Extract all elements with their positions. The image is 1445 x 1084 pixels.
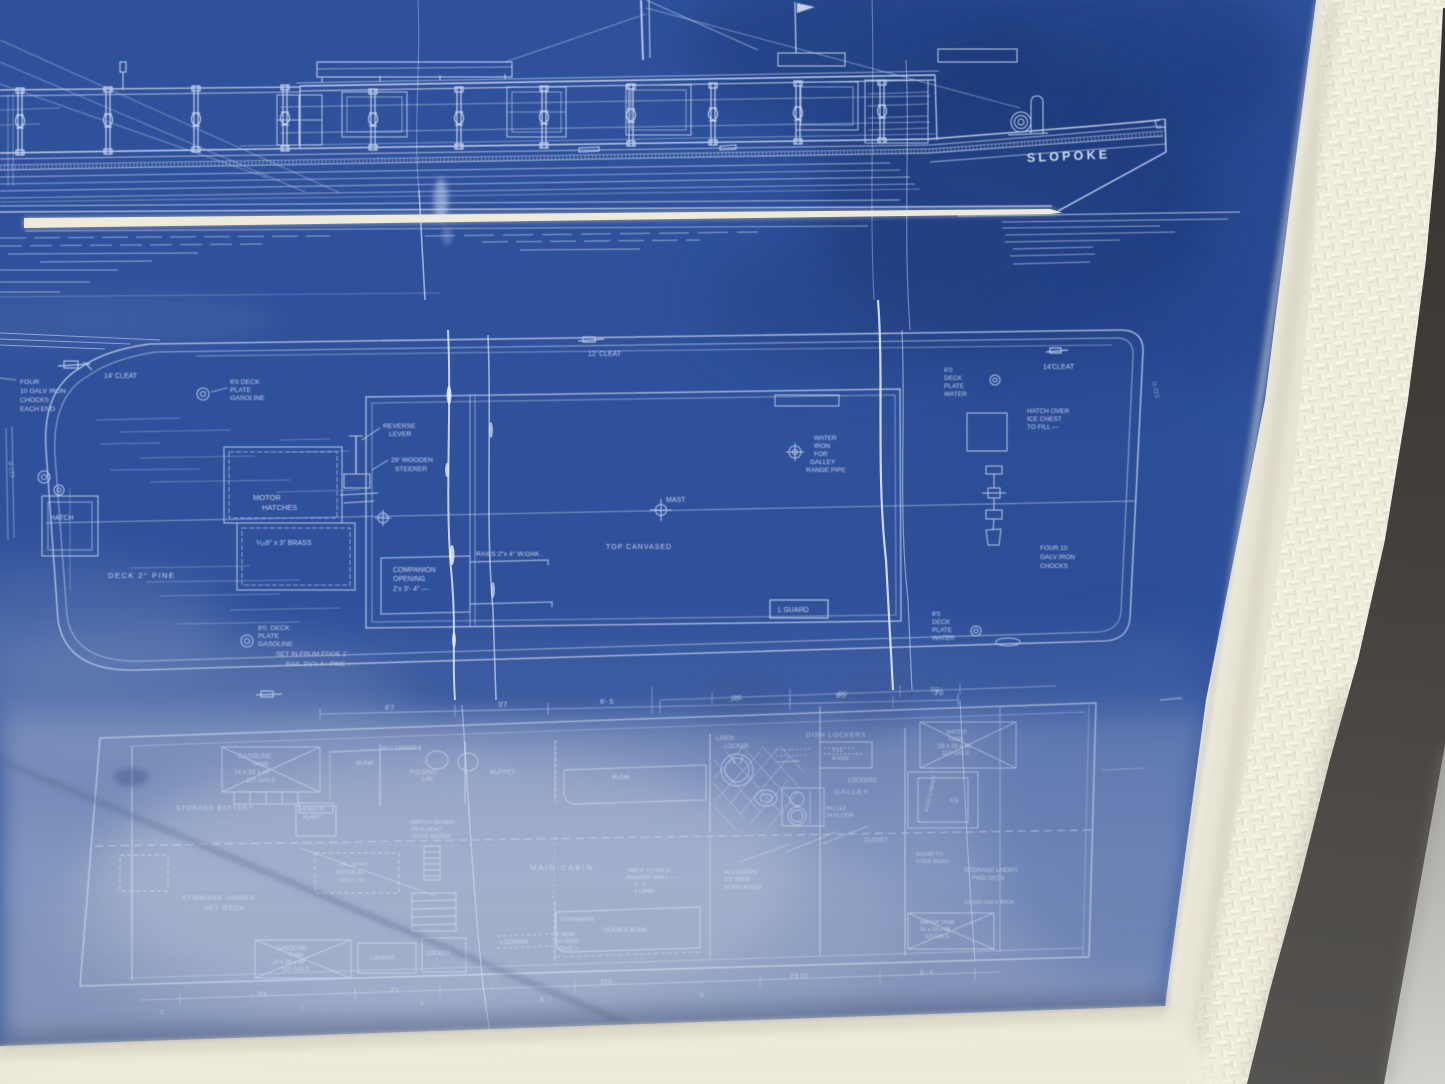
svg-text:ETER BERG: ETER BERG <box>916 859 950 865</box>
svg-text:LOCKER: LOCKER <box>426 951 451 957</box>
svg-text:24 x 26 x 48: 24 x 26 x 48 <box>234 769 270 776</box>
svg-text:GASOLINE: GASOLINE <box>276 946 307 952</box>
svg-text:14′ CLEAT: 14′ CLEAT <box>104 373 138 380</box>
svg-text:10 - 20 H P: 10 - 20 H P <box>340 862 368 868</box>
svg-text:2′x 3′- 4″ —: 2′x 3′- 4″ — <box>393 586 428 593</box>
svg-text:24 FLOOR: 24 FLOOR <box>826 813 854 819</box>
svg-text:BUFFET: BUFFET <box>490 769 515 776</box>
svg-text:MOTOR AT: MOTOR AT <box>336 870 365 876</box>
svg-text:TO FILL —: TO FILL — <box>1027 424 1059 431</box>
svg-text:WATER: WATER <box>814 435 837 442</box>
svg-text:FOLDING: FOLDING <box>410 770 437 776</box>
svg-text:LOCKERS: LOCKERS <box>500 940 529 946</box>
svg-text:2′1″ WIDE: 2′1″ WIDE <box>724 877 750 883</box>
svg-text:GALV IRON: GALV IRON <box>1040 554 1075 561</box>
svg-text:⅒6″ x 3″ BRASS: ⅒6″ x 3″ BRASS <box>256 540 312 547</box>
svg-text:6′0 DECK: 6′0 DECK <box>230 379 260 386</box>
svg-text:STORAGE BATTERY: STORAGE BATTERY <box>176 805 254 812</box>
svg-text:MOTOR: MOTOR <box>253 493 281 502</box>
svg-text:MAST: MAST <box>666 497 686 504</box>
svg-text:GALLEY: GALLEY <box>810 459 836 466</box>
svg-text:OVER MOTER: OVER MOTER <box>412 834 451 840</box>
svg-text:15′0: 15′0 <box>600 979 612 986</box>
svg-text:COMPANION: COMPANION <box>393 567 436 574</box>
svg-text:3 SEAT: 3 SEAT <box>556 932 576 938</box>
svg-text:LINEN: LINEN <box>716 736 734 742</box>
svg-text:LOCKER: LOCKER <box>370 956 395 962</box>
svg-text:DISH LOCKERS: DISH LOCKERS <box>806 732 866 739</box>
svg-text:BUNK: BUNK <box>356 760 375 767</box>
svg-text:GALLEY: GALLEY <box>834 789 869 796</box>
svg-text:›: › <box>490 983 492 990</box>
svg-text:NO 113: NO 113 <box>826 806 846 812</box>
svg-text:110 GALS: 110 GALS <box>942 751 969 757</box>
svg-text:SWITCH BOARD: SWITCH BOARD <box>410 820 455 826</box>
svg-text:26′ WOODEN: 26′ WOODEN <box>391 457 433 464</box>
svg-text:OPENING: OPENING <box>393 576 425 583</box>
svg-text:3′0 ′: 3′0 ′ <box>930 687 943 694</box>
svg-text:TANK: TANK <box>252 761 270 768</box>
svg-text:600 R / M: 600 R / M <box>340 878 364 884</box>
svg-text:29 x 26 x 48: 29 x 26 x 48 <box>938 744 971 750</box>
svg-text:3′1: 3′1 <box>390 987 399 994</box>
svg-text:EACH END: EACH END <box>20 406 55 413</box>
svg-text:CHOCKS: CHOCKS <box>20 397 50 404</box>
svg-text:2′9 5′0: 2′9 5′0 <box>790 973 809 980</box>
svg-text:PLANT: PLANT <box>303 815 321 821</box>
svg-text:STATE ROOM: STATE ROOM <box>724 885 762 891</box>
svg-text:TANK: TANK <box>288 953 304 959</box>
svg-text:Φ 6333: Φ 6333 <box>832 756 849 762</box>
svg-text:12′ CLEAT: 12′ CLEAT <box>588 351 622 358</box>
svg-text:ICE CHEST: ICE CHEST <box>1027 416 1062 423</box>
svg-text:DECK: DECK <box>944 375 963 382</box>
svg-text:BUNK: BUNK <box>612 774 631 781</box>
svg-text:RANGE PIPE: RANGE PIPE <box>806 467 846 474</box>
svg-text:6: 6 <box>540 997 544 1004</box>
svg-text:110 GALS: 110 GALS <box>246 777 276 784</box>
svg-text:WATER TANK: WATER TANK <box>920 920 955 926</box>
svg-text:6′0: 6′0 <box>932 611 941 618</box>
svg-text:PLATE: PLATE <box>230 387 251 394</box>
svg-text:PLATE: PLATE <box>932 627 953 634</box>
svg-text:7: 7 <box>300 1005 304 1012</box>
svg-text:110 GALS: 110 GALS <box>282 967 309 973</box>
svg-text:10 GALV IRON: 10 GALV IRON <box>20 388 66 395</box>
svg-text:LAV: LAV <box>422 777 433 783</box>
svg-text:3 x 5: 3 x 5 <box>832 748 843 754</box>
svg-text:FWD DECK: FWD DECK <box>972 875 1006 882</box>
svg-text:3′0: 3′0 <box>733 695 742 702</box>
svg-text:LOCKER: LOCKER <box>724 744 749 750</box>
svg-text:6′0: 6′0 <box>838 691 847 698</box>
svg-text:14′CLEAT: 14′CLEAT <box>1043 364 1075 371</box>
svg-text:STOWAGE UNDER: STOWAGE UNDER <box>182 895 255 902</box>
svg-text:PLATE: PLATE <box>944 383 965 390</box>
svg-text:ALL DOORS: ALL DOORS <box>724 870 757 876</box>
svg-text:GASOLINE: GASOLINE <box>238 753 272 760</box>
svg-text:7: 7 <box>420 1001 424 1008</box>
svg-text:WATER: WATER <box>944 391 967 398</box>
svg-text:GASOLINE: GASOLINE <box>230 395 265 402</box>
svg-text:STEERER: STEERER <box>395 466 427 473</box>
svg-text:TABLE TO FOLD: TABLE TO FOLD <box>626 868 670 874</box>
svg-text:FOUR: FOUR <box>20 379 39 386</box>
svg-text:HATCH: HATCH <box>50 515 74 522</box>
svg-text:6′0: 6′0 <box>944 367 953 374</box>
svg-text:WATER: WATER <box>946 730 968 736</box>
svg-text:66 x 18 x 48: 66 x 18 x 48 <box>920 927 950 933</box>
svg-text:PLATE: PLATE <box>258 633 279 640</box>
svg-text:FOR: FOR <box>814 451 828 458</box>
svg-text:DOUBLE BUNK: DOUBLE BUNK <box>604 928 647 934</box>
svg-text:LEVER: LEVER <box>389 431 411 438</box>
svg-text:CHOCKS: CHOCKS <box>1040 563 1068 570</box>
svg-text:HOME-?E: HOME-?E <box>300 807 325 813</box>
svg-text:110 GALS: 110 GALS <box>924 934 949 940</box>
svg-text:HATCH OVER: HATCH OVER <box>1027 408 1069 415</box>
svg-text:L GUARD: L GUARD <box>778 607 809 614</box>
svg-text:CLOSET: CLOSET <box>864 838 888 844</box>
svg-text:REVERSE: REVERSE <box>383 423 416 430</box>
svg-text:FOUR 10: FOUR 10 <box>1040 545 1068 552</box>
svg-text:3 DRAWERS: 3 DRAWERS <box>560 917 594 923</box>
svg-text:DECK 2″ PINE: DECK 2″ PINE <box>108 571 175 580</box>
svg-text:3′- 6″: 3′- 6″ <box>634 882 647 888</box>
svg-text:AFT DECK: AFT DECK <box>204 905 246 912</box>
svg-text:STORAGE UNDER: STORAGE UNDER <box>964 867 1018 874</box>
svg-text:HATCHES: HATCHES <box>262 503 297 512</box>
svg-text:LOCKERS: LOCKERS <box>848 778 877 784</box>
svg-text:8: 8 <box>700 992 704 999</box>
svg-text:ON B HEAD: ON B HEAD <box>410 827 442 833</box>
svg-text:24 x 26 x 48: 24 x 26 x 48 <box>272 960 305 966</box>
svg-text:2: 2 <box>160 1009 164 1016</box>
svg-text:6 - 4: 6 - 4 <box>920 969 933 976</box>
svg-text:4 LANE: 4 LANE <box>634 889 654 895</box>
svg-text:RAILS 2″x 4″ W.OAK .: RAILS 2″x 4″ W.OAK . <box>476 551 543 558</box>
svg-text:6′0. DECK: 6′0. DECK <box>258 625 290 632</box>
svg-text:DECK: DECK <box>932 619 951 626</box>
svg-text:MAIN CABIN ′: MAIN CABIN ′ <box>530 863 601 872</box>
svg-text:TOP CANVASED: TOP CANVASED <box>606 544 672 551</box>
svg-text:AGAINST WALL — ›: AGAINST WALL — › <box>626 875 679 881</box>
svg-text:ICE: ICE <box>950 798 960 804</box>
svg-text:← 3′6 →: ← 3′6 → <box>250 991 275 998</box>
svg-text:DOOR TO: DOOR TO <box>916 852 943 858</box>
svg-text:IRON: IRON <box>814 443 831 450</box>
svg-text:30 WIDE: 30 WIDE <box>556 939 579 945</box>
